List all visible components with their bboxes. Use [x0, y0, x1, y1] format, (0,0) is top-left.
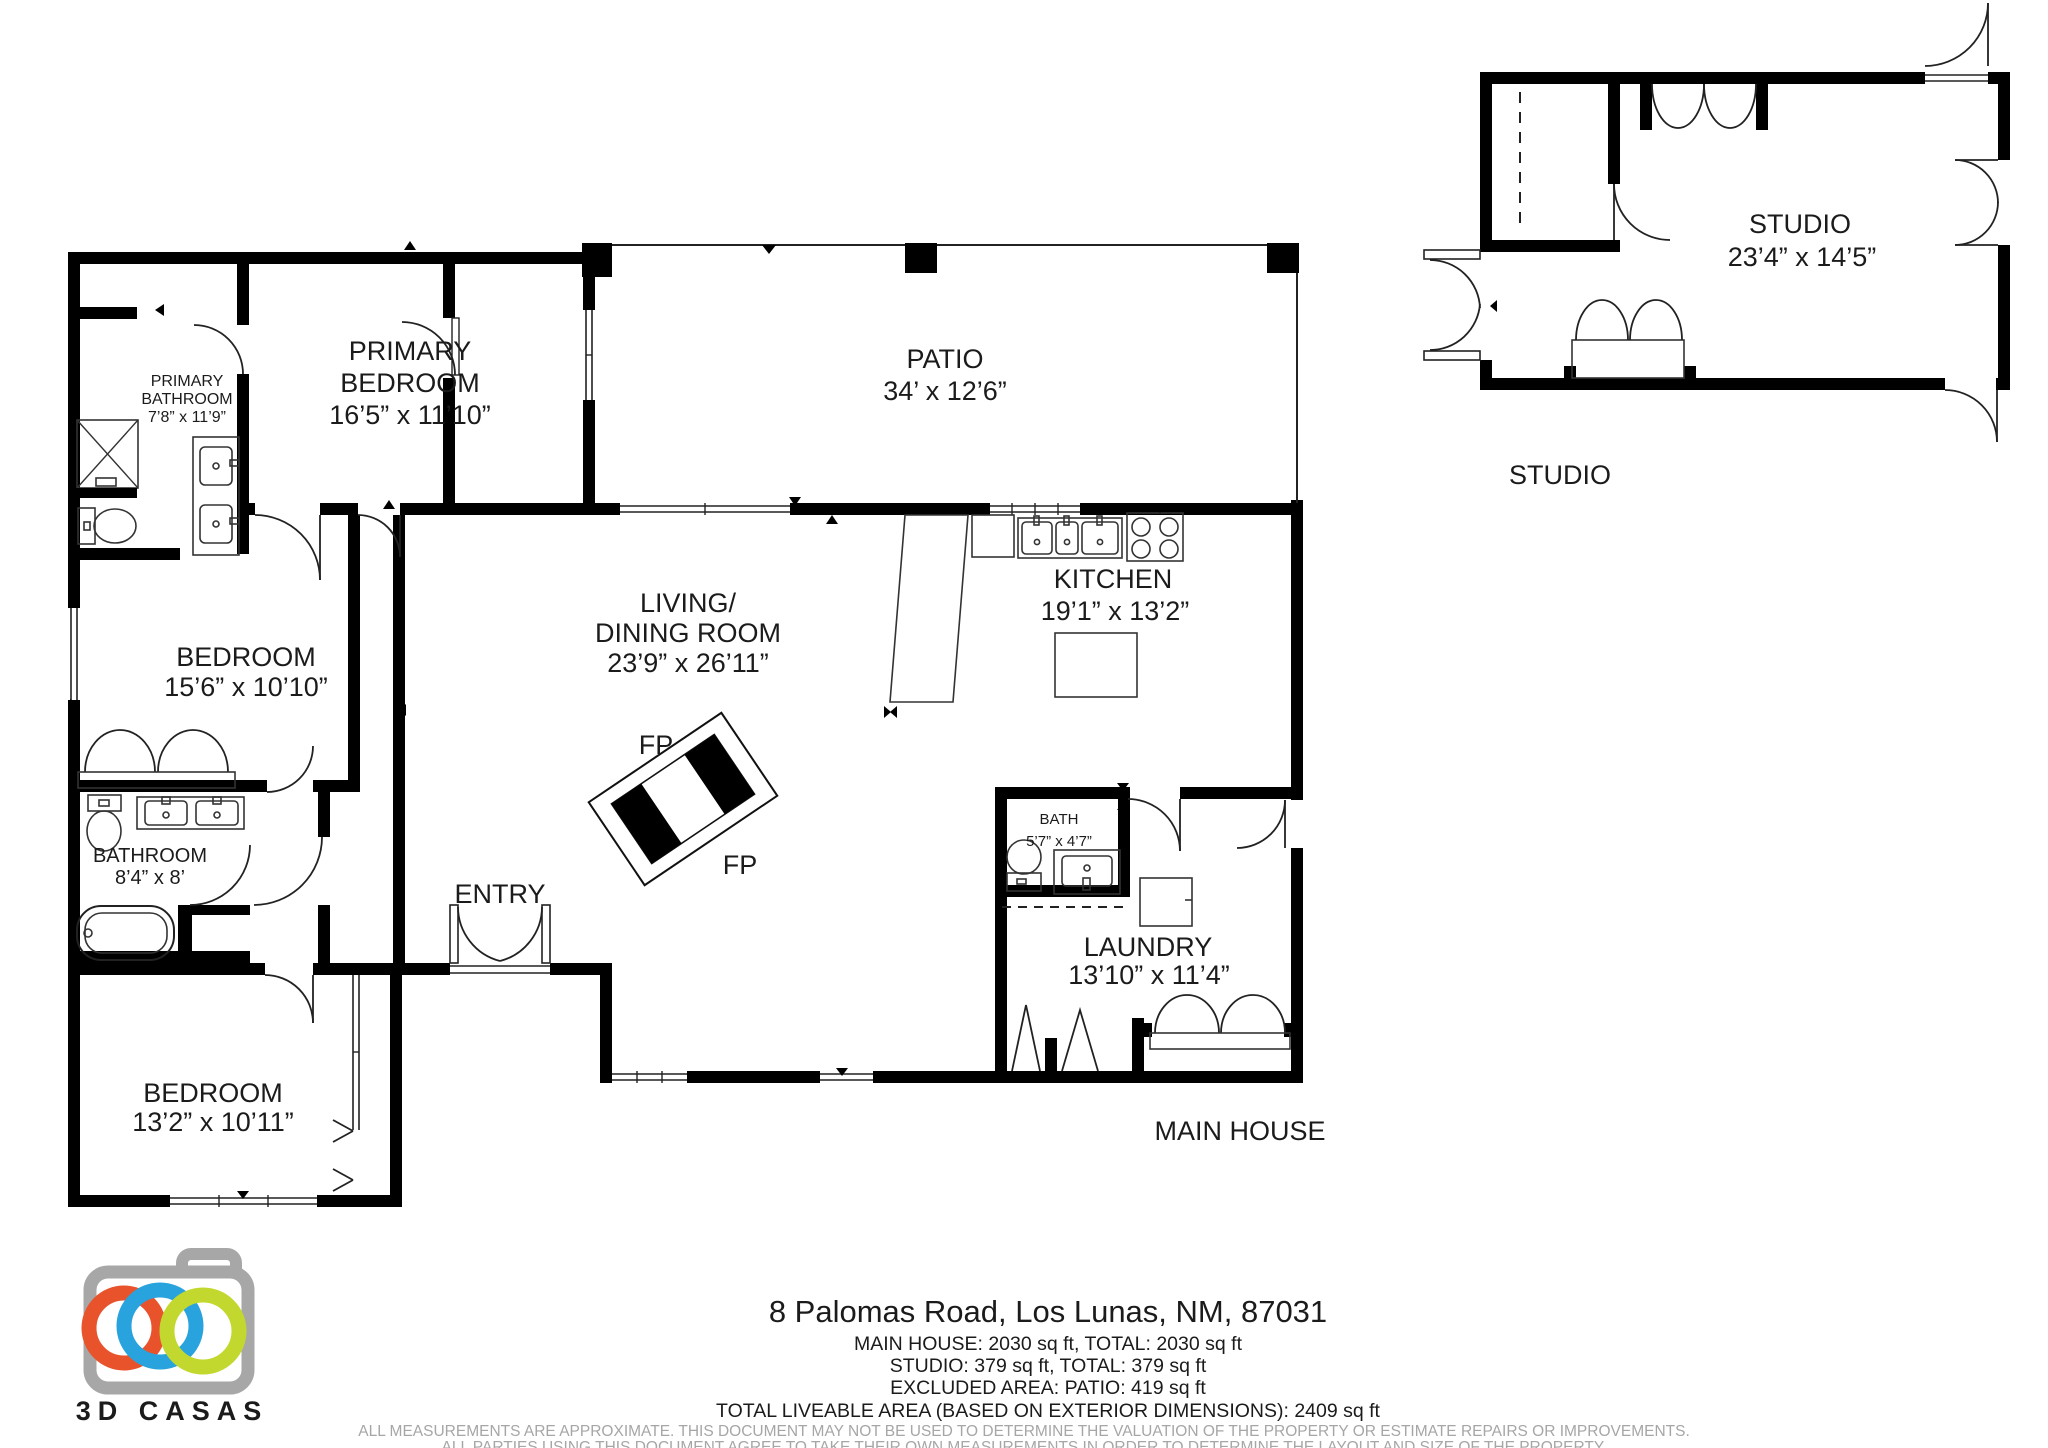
entry-threshold: [450, 966, 550, 973]
svg-text:19’1” x 13’2”: 19’1” x 13’2”: [1041, 596, 1190, 626]
window-kitchen: [990, 503, 1080, 515]
fp-label-1: FP: [639, 730, 674, 760]
svg-text:DINING ROOM: DINING ROOM: [595, 618, 781, 648]
room-label-bath: BATH 5’7” x 4’7”: [1026, 811, 1092, 850]
window-living-bottom-2: [820, 1074, 873, 1080]
floor-plan-page: PRIMARY BATHROOM 7’8” x 11’9” PRIMARY BE…: [0, 0, 2048, 1448]
closet-stub-wall: [75, 307, 137, 319]
window-living-bottom-1: [612, 1071, 687, 1083]
svg-text:PRIMARY: PRIMARY: [151, 373, 224, 390]
door-mid-bedroom-closet: [267, 746, 313, 792]
room-label-patio: PATIO 34’ x 12’6”: [883, 344, 1007, 406]
svg-text:23’4” x 14’5”: 23’4” x 14’5”: [1728, 242, 1877, 272]
room-labels: PRIMARY BATHROOM 7’8” x 11’9” PRIMARY BE…: [93, 209, 1876, 1146]
camera-icon: [89, 1254, 248, 1388]
brand-logo: 3D CASAS: [76, 1254, 269, 1426]
svg-text:BEDROOM: BEDROOM: [143, 1078, 283, 1108]
svg-text:BATH: BATH: [1040, 811, 1079, 828]
studio-top-closet-bifold: [1652, 84, 1756, 128]
window-alcove: [586, 310, 592, 400]
studio-bottom-closet: [1572, 300, 1684, 378]
area-main-house: MAIN HOUSE: 2030 sq ft, TOTAL: 2030 sq f…: [854, 1333, 1243, 1355]
floor-plan-drawing: PRIMARY BATHROOM 7’8” x 11’9” PRIMARY BE…: [0, 0, 2048, 1448]
svg-text:PATIO: PATIO: [906, 344, 983, 374]
studio-caption: STUDIO: [1509, 460, 1611, 490]
svg-text:5’7” x 4’7”: 5’7” x 4’7”: [1026, 833, 1092, 850]
svg-text:KITCHEN: KITCHEN: [1054, 564, 1173, 594]
shower-fixture: [77, 420, 138, 488]
shower-wall: [75, 488, 137, 498]
kitchen-bar: [890, 515, 968, 702]
area-total: TOTAL LIVEABLE AREA (BASED ON EXTERIOR D…: [716, 1400, 1381, 1422]
closet-slider-mark-1: [333, 1120, 353, 1142]
kitchen-counter: [972, 515, 1122, 558]
studio-entry-doors: [1424, 250, 1497, 360]
main-house-caption: MAIN HOUSE: [1154, 1116, 1325, 1146]
room-label-primary-bathroom: PRIMARY BATHROOM 7’8” x 11’9”: [141, 373, 232, 426]
disclaimer-line-1: ALL MEASUREMENTS ARE APPROXIMATE. THIS D…: [358, 1423, 1690, 1440]
room-label-bathroom: BATHROOM 8’4” x 8’: [93, 845, 207, 889]
address-text: 8 Palomas Road, Los Lunas, NM, 87031: [769, 1294, 1327, 1329]
room-label-kitchen: KITCHEN 19’1” x 13’2”: [1041, 564, 1190, 626]
door-bottom-bedroom: [265, 975, 313, 1023]
window-bottom-bedroom-closet-front: [353, 975, 359, 1130]
mid-bedroom-closet: [78, 730, 235, 788]
entry-double-doors: [450, 905, 550, 963]
room-label-laundry: LAUNDRY 13’10” x 11’4”: [1068, 932, 1230, 990]
closet-slider-mark-2: [333, 1169, 353, 1191]
svg-text:PRIMARY: PRIMARY: [349, 336, 472, 366]
toilet-fixture: [87, 795, 121, 851]
svg-text:23’9” x 26’11”: 23’9” x 26’11”: [607, 648, 769, 678]
fp-label-2: FP: [723, 850, 758, 880]
patio-marker: [762, 245, 776, 254]
svg-text:7’8” x 11’9”: 7’8” x 11’9”: [148, 409, 226, 426]
svg-text:15’6” x 10’10”: 15’6” x 10’10”: [164, 672, 328, 702]
svg-text:13’2” x 10’11”: 13’2” x 10’11”: [132, 1107, 294, 1137]
svg-text:13’10” x 11’4”: 13’10” x 11’4”: [1068, 960, 1230, 990]
studio-right-double-door: [1955, 160, 1998, 245]
svg-text:BEDROOM: BEDROOM: [340, 368, 480, 398]
room-label-primary-bedroom: PRIMARY BEDROOM 16’5” x 11’10”: [329, 336, 491, 430]
studio-plan: [1424, 3, 2010, 442]
stove-fixture: [1127, 513, 1183, 561]
entry-label: ENTRY: [454, 879, 545, 909]
laundry-closet: [1150, 995, 1290, 1049]
main-house-walls: [68, 243, 1303, 1207]
door-mid-bedroom: [255, 515, 320, 580]
room-label-living: LIVING/ DINING ROOM 23’9” x 26’11”: [595, 588, 781, 678]
svg-text:LIVING/: LIVING/: [640, 588, 737, 618]
door-louvered-2: [1062, 1010, 1098, 1071]
door-kitchen-laundry: [1128, 799, 1180, 851]
svg-text:BATHROOM: BATHROOM: [141, 391, 232, 408]
room-label-studio: STUDIO 23’4” x 14’5”: [1728, 209, 1877, 272]
svg-text:8’4” x 8’: 8’4” x 8’: [115, 867, 185, 889]
studio-top-right-door: [1925, 3, 1988, 81]
area-studio: STUDIO: 379 sq ft, TOTAL: 379 sq ft: [890, 1355, 1207, 1377]
door-laundry-side: [1237, 800, 1285, 848]
room-label-bottom-bedroom: BEDROOM 13’2” x 10’11”: [132, 1078, 294, 1137]
washer-fixture: [1140, 878, 1192, 926]
brand-name: 3D CASAS: [76, 1396, 269, 1426]
area-excluded: EXCLUDED AREA: PATIO: 419 sq ft: [890, 1377, 1206, 1399]
double-vanity-fixture: [137, 797, 244, 829]
kitchen-island: [1055, 633, 1137, 697]
door-primary-bathroom: [194, 325, 243, 374]
studio-bottom-right-door: [1945, 390, 1997, 442]
disclaimer-line-2: ALL PARTIES USING THIS DOCUMENT AGREE TO…: [441, 1439, 1606, 1448]
primary-vanity-fixture: [193, 437, 239, 555]
window-living-patio: [620, 503, 790, 515]
svg-text:LAUNDRY: LAUNDRY: [1084, 932, 1213, 962]
door-louvered-1: [1012, 1005, 1040, 1071]
svg-text:BEDROOM: BEDROOM: [176, 642, 316, 672]
door-bathroom: [254, 837, 322, 905]
svg-text:BATHROOM: BATHROOM: [93, 845, 207, 867]
svg-text:34’ x 12’6”: 34’ x 12’6”: [883, 376, 1007, 406]
svg-text:16’5” x 11’10”: 16’5” x 11’10”: [329, 400, 491, 430]
primary-toilet-fixture: [78, 508, 136, 544]
svg-text:STUDIO: STUDIO: [1749, 209, 1851, 239]
footer: 8 Palomas Road, Los Lunas, NM, 87031 MAI…: [358, 1294, 1690, 1448]
window-mid-bedroom: [68, 608, 80, 700]
room-label-mid-bedroom: BEDROOM 15’6” x 10’10”: [164, 642, 328, 702]
